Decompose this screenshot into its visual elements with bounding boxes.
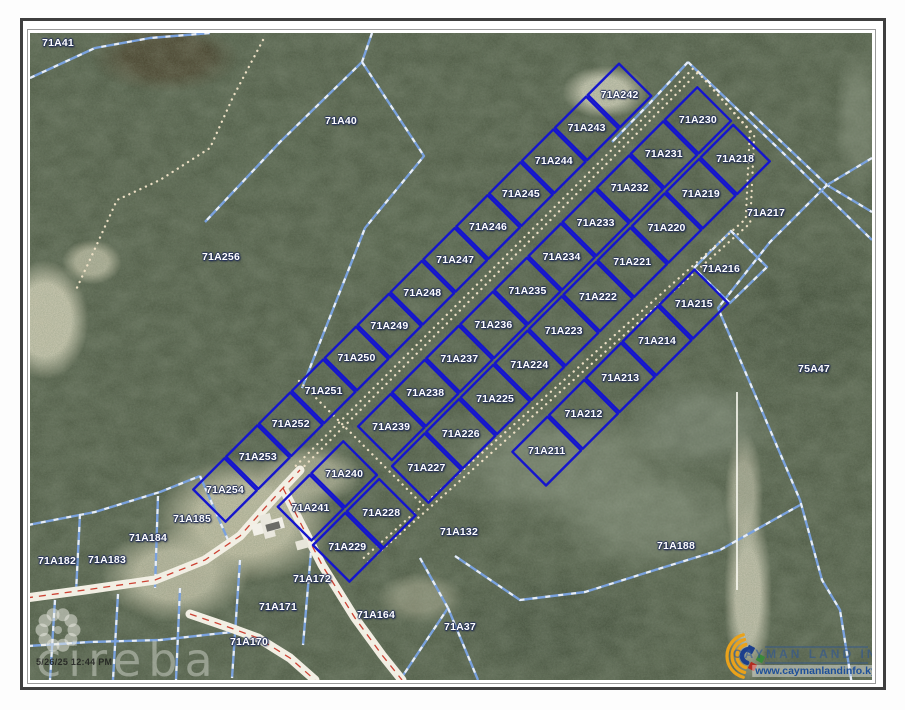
parcel-label: 71A217 xyxy=(747,207,785,219)
parcel-label: 71A251 xyxy=(305,385,343,397)
parcel-label: 71A254 xyxy=(206,484,244,496)
parcel-label: 71A227 xyxy=(408,462,446,474)
parcel-label: 71A248 xyxy=(403,287,441,299)
parcel-label: 71A37 xyxy=(444,621,476,633)
map-surface[interactable]: 71A25471A25371A25271A25171A25071A24971A2… xyxy=(30,33,872,680)
parcel-label: 71A240 xyxy=(325,468,363,480)
parcel-label: 71A238 xyxy=(406,387,444,399)
parcel-label: 71A183 xyxy=(88,554,126,566)
parcel-label: 71A231 xyxy=(645,148,683,160)
parcel-label: 71A236 xyxy=(474,319,512,331)
parcel-label: 71A222 xyxy=(579,291,617,303)
parcel-label: 71A188 xyxy=(657,540,695,552)
parcel-label: 71A235 xyxy=(509,285,547,297)
parcel-label: 71A224 xyxy=(510,359,548,371)
parcel-label: 71A239 xyxy=(372,421,410,433)
parcel-label: 71A211 xyxy=(528,445,565,457)
parcel-label: 71A215 xyxy=(675,298,713,310)
parcel-label: 71A221 xyxy=(613,256,651,268)
parcel-label: 75A47 xyxy=(798,363,830,375)
parcel-label: 71A256 xyxy=(202,251,240,263)
parcel-label: 71A172 xyxy=(293,573,331,585)
parcel-label: 71A228 xyxy=(362,507,400,519)
parcel-label: 71A185 xyxy=(173,513,211,525)
provider-logo-url: www.caymanlandinfo.ky xyxy=(752,665,872,677)
track-trails-layer xyxy=(75,40,754,562)
parcel-label: 71A223 xyxy=(545,325,583,337)
parcel-label: 71A213 xyxy=(601,372,639,384)
parcel-label: 71A233 xyxy=(577,217,615,229)
parcel-label: 71A132 xyxy=(440,526,478,538)
parcel-label: 71A171 xyxy=(259,601,297,613)
parcel-label: 71A245 xyxy=(502,188,540,200)
parcel-label: 71A212 xyxy=(565,408,603,420)
parcel-label: 71A170 xyxy=(230,636,268,648)
parcel-label: 71A234 xyxy=(543,251,581,263)
parcel-label: 71A242 xyxy=(601,89,639,101)
parcel-label: 71A164 xyxy=(357,609,395,621)
parcel-label: 71A218 xyxy=(716,153,754,165)
provider-logo-title: CAYMAN LAND INFO xyxy=(733,647,872,661)
parcel-label: 71A244 xyxy=(535,155,573,167)
map-export-page: 71A25471A25371A25271A25171A25071A24971A2… xyxy=(0,0,905,710)
parcel-label: 71A40 xyxy=(325,115,357,127)
parcel-label: 71A237 xyxy=(440,353,478,365)
parcel-label: 71A247 xyxy=(436,254,474,266)
parcel-label: 71A249 xyxy=(370,320,408,332)
parcel-label: 71A232 xyxy=(611,182,649,194)
map-timestamp: 5/26/25 12:44 PM xyxy=(36,657,112,667)
parcel-label: 71A246 xyxy=(469,221,507,233)
parcel-label: 71A214 xyxy=(638,335,676,347)
parcel-label: 71A250 xyxy=(338,352,376,364)
parcel-label: 71A243 xyxy=(568,122,606,134)
parcel-label: 71A216 xyxy=(702,263,740,275)
parcel-label: 71A241 xyxy=(292,502,330,514)
parcel-label: 71A41 xyxy=(42,37,74,49)
parcel-label: 71A229 xyxy=(328,541,366,553)
parcel-label: 71A226 xyxy=(442,428,480,440)
parcel-label: 71A225 xyxy=(476,393,514,405)
parcel-label: 71A230 xyxy=(679,114,717,126)
parcel-label: 71A184 xyxy=(129,532,167,544)
parcel-label: 71A252 xyxy=(272,418,310,430)
parcel-label: 71A219 xyxy=(682,188,720,200)
parcel-label: 71A253 xyxy=(239,451,277,463)
parcel-label: 71A182 xyxy=(38,555,76,567)
parcel-label: 71A220 xyxy=(648,222,686,234)
